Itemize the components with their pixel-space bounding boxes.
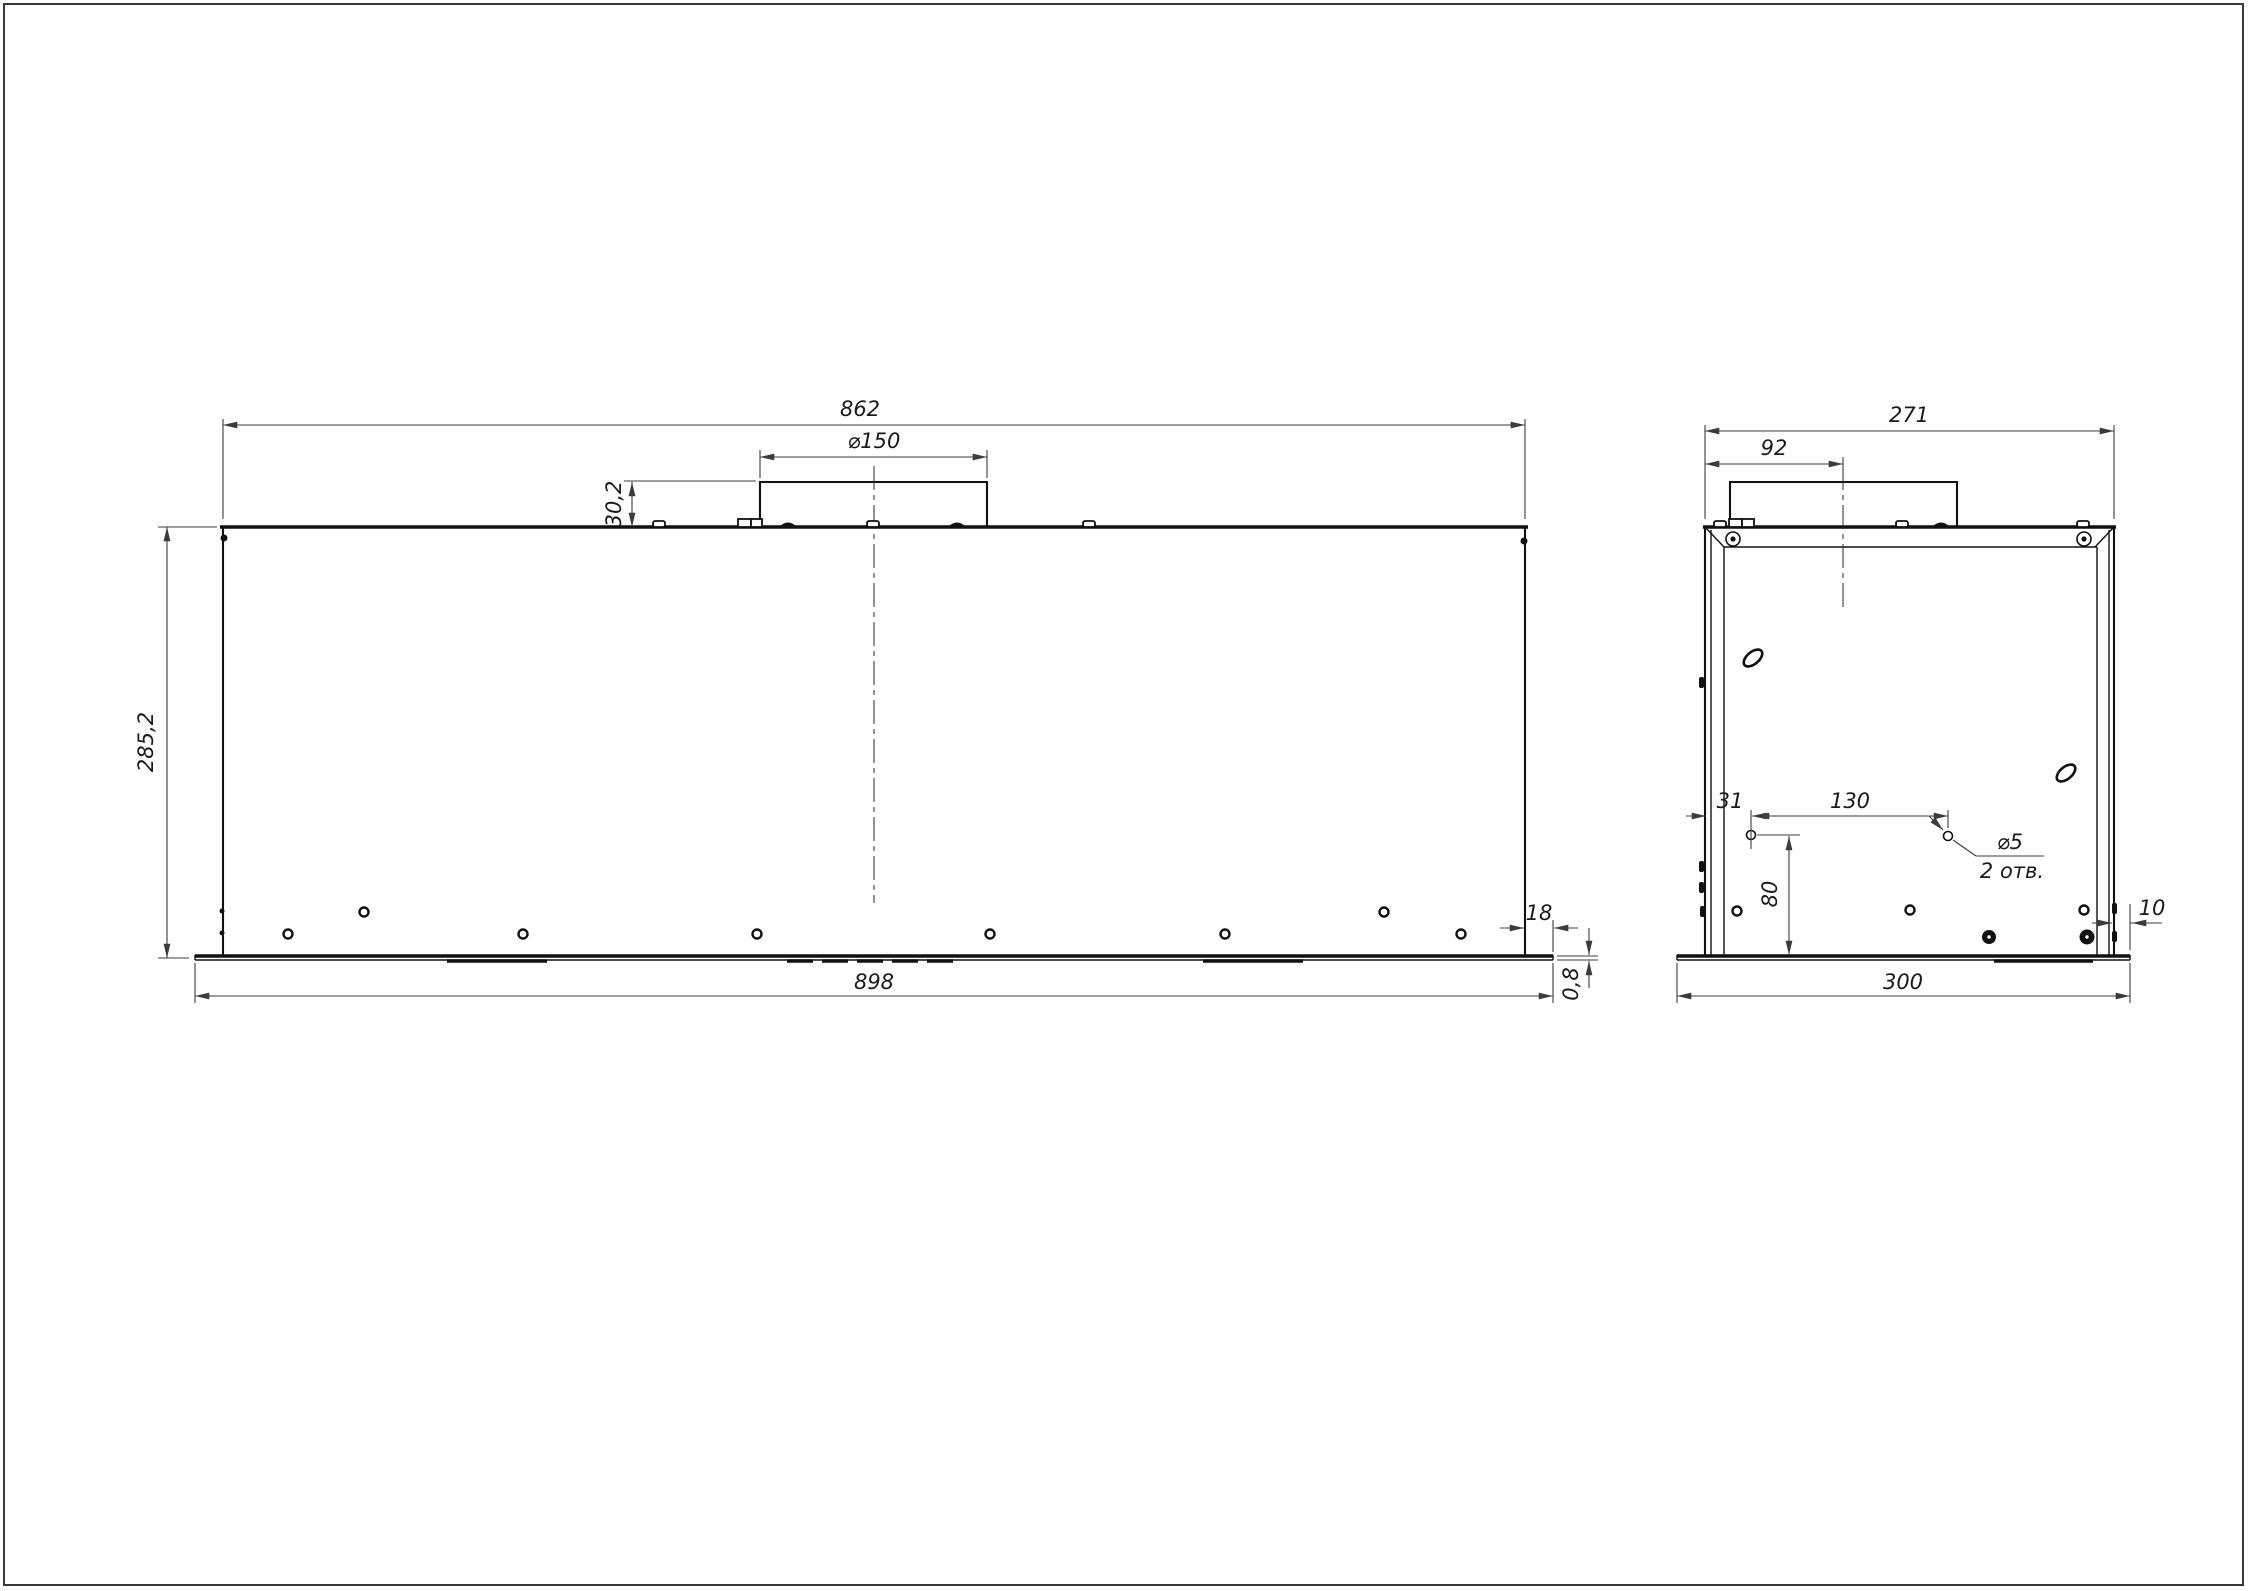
weld-bump (779, 523, 797, 528)
tab (1083, 521, 1095, 527)
dim-80: 80 (1757, 835, 1800, 955)
dim-label-31: 31 (1717, 789, 1744, 813)
corner-chamfer (2095, 527, 2114, 547)
tab (1714, 521, 1726, 527)
mount-hole-5mm (1944, 832, 1953, 841)
dim-10: 10 (2092, 896, 2165, 950)
dim-label-862: 862 (840, 397, 880, 421)
tab-double (1742, 519, 1754, 527)
dim-label-271: 271 (1889, 403, 1929, 427)
tab-double (1729, 519, 1742, 527)
screw-hole (1380, 908, 1389, 917)
dim-300: 300 (1677, 963, 2130, 1003)
tab-double (738, 519, 751, 527)
dim-label-130: 130 (1830, 789, 1870, 813)
drawing-sheet: 862 ⌀150 30,2 285,2 (0, 0, 2249, 1591)
side-corner-screws (1726, 532, 2091, 546)
dim-label-duct-diameter: ⌀150 (848, 429, 901, 453)
dim-label-duct-height: 30,2 (602, 481, 626, 528)
dim-130: 130 (1755, 789, 1948, 828)
side-body (1677, 527, 2130, 961)
oval-slot (2054, 761, 2079, 784)
screw-hole (753, 930, 762, 939)
dim-92: 92 (1705, 436, 1843, 470)
dim-label-height: 285,2 (134, 712, 158, 772)
screw-hole (1457, 930, 1466, 939)
weld-bump (1932, 523, 1950, 528)
side-view: 271 92 31 130 80 (1677, 403, 2165, 1003)
side-bottom-holes (1733, 906, 2095, 945)
front-screw-holes (284, 908, 1466, 939)
dim-271: 271 (1705, 403, 2114, 519)
dim-label-flange-overhang: 18 (1526, 901, 1553, 925)
callout-label-hole-diameter: ⌀5 (1997, 830, 2023, 854)
screw-hole (284, 930, 293, 939)
dim-label-80: 80 (1758, 881, 1782, 908)
screw-hole (360, 908, 369, 917)
screw-hole (1221, 930, 1230, 939)
weld-bump (948, 523, 966, 528)
front-view: 862 ⌀150 30,2 285,2 (134, 397, 1598, 1003)
dim-31: 31 (1686, 789, 1772, 849)
tab-double (751, 519, 762, 527)
oval-slot (1741, 646, 1766, 669)
tab (867, 521, 879, 527)
dim-862: 862 (223, 397, 1525, 519)
dim-label-898: 898 (854, 970, 894, 994)
dim-30-2: 30,2 (602, 481, 756, 528)
callout-label-hole-count: 2 отв. (1980, 859, 2044, 883)
dim-label-92: 92 (1761, 436, 1788, 460)
screw-hole (1733, 907, 1742, 916)
screw-hole (986, 930, 995, 939)
dim-label-10: 10 (2139, 896, 2166, 920)
tab (1896, 521, 1908, 527)
drawing-canvas: 862 ⌀150 30,2 285,2 (0, 0, 2249, 1591)
dim-label-sheet-thickness: 0,8 (1559, 967, 1583, 1000)
screw-hole (519, 930, 528, 939)
side-oval-slots (1741, 646, 2079, 784)
dim-18: 18 (1500, 901, 1578, 952)
tab (2077, 521, 2089, 527)
corner-chamfer (1705, 527, 1724, 547)
dim-0-8: 0,8 (1557, 928, 1598, 1001)
dim-label-300: 300 (1883, 970, 1923, 994)
callout-hole-5mm: ⌀5 2 отв. (1929, 816, 2044, 883)
screw-hole (1906, 906, 1915, 915)
dim-898: 898 (195, 963, 1553, 1003)
screw-hole (2080, 906, 2089, 915)
dim-285-2: 285,2 (134, 527, 217, 958)
tab (653, 521, 665, 527)
